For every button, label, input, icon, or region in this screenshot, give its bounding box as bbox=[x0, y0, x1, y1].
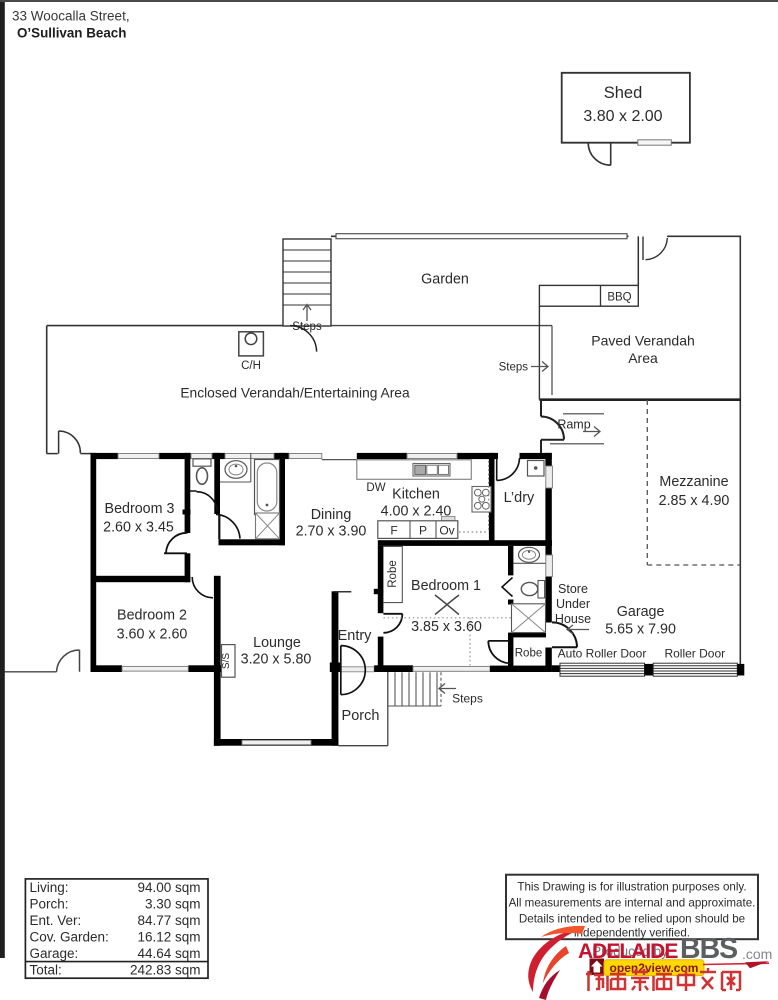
svg-text:Mezzanine: Mezzanine bbox=[659, 474, 728, 490]
svg-text:3.85 x 3.60: 3.85 x 3.60 bbox=[411, 619, 482, 635]
svg-text:Enclosed Verandah/Entertaining: Enclosed Verandah/Entertaining Area bbox=[180, 386, 410, 401]
svg-text:242.83 sqm: 242.83 sqm bbox=[130, 963, 201, 978]
svg-text:Area: Area bbox=[628, 350, 658, 366]
svg-text:Total:: Total: bbox=[30, 963, 62, 978]
svg-text:2.60 x 3.45: 2.60 x 3.45 bbox=[103, 520, 174, 536]
svg-text:Porch:: Porch: bbox=[30, 897, 69, 912]
svg-text:DW: DW bbox=[366, 482, 385, 494]
svg-text:Porch: Porch bbox=[342, 708, 380, 724]
svg-text:3.20 x 5.80: 3.20 x 5.80 bbox=[241, 652, 312, 668]
svg-text:33 Woocalla Street,: 33 Woocalla Street, bbox=[12, 9, 130, 24]
svg-text:Dining: Dining bbox=[311, 507, 352, 523]
svg-text:Entry: Entry bbox=[338, 628, 373, 644]
svg-text:2.70 x 3.90: 2.70 x 3.90 bbox=[296, 524, 367, 540]
svg-text:Living:: Living: bbox=[30, 880, 69, 895]
svg-text:Steps: Steps bbox=[499, 362, 529, 374]
svg-text:S/S: S/S bbox=[221, 653, 232, 669]
svg-text:independently verified.: independently verified. bbox=[574, 927, 690, 940]
svg-text:BBQ: BBQ bbox=[607, 292, 631, 304]
svg-text:Garage: Garage bbox=[617, 604, 665, 620]
svg-text:Robe: Robe bbox=[387, 560, 399, 588]
svg-text:Garden: Garden bbox=[421, 272, 469, 288]
svg-text:Under: Under bbox=[556, 597, 590, 611]
svg-text:L’dry: L’dry bbox=[504, 490, 535, 506]
svg-text:All measurements are internal: All measurements are internal and approx… bbox=[509, 897, 756, 910]
svg-text:44.64 sqm: 44.64 sqm bbox=[137, 946, 200, 961]
svg-text:Roller Door: Roller Door bbox=[664, 647, 725, 661]
svg-text:2.85 x 4.90: 2.85 x 4.90 bbox=[659, 493, 730, 509]
svg-text:House: House bbox=[555, 612, 591, 626]
svg-text:Robe: Robe bbox=[515, 648, 543, 660]
svg-text:Shed: Shed bbox=[604, 84, 643, 102]
svg-text:Lounge: Lounge bbox=[253, 635, 301, 651]
svg-text:Ov: Ov bbox=[439, 524, 454, 538]
svg-text:Garage:: Garage: bbox=[30, 946, 79, 961]
svg-text:Ramp: Ramp bbox=[557, 418, 590, 432]
svg-text:This Drawing is for illustrati: This Drawing is for illustration purpose… bbox=[517, 881, 746, 894]
svg-text:Ent. Ver:: Ent. Ver: bbox=[30, 913, 82, 928]
svg-text:3.60 x 2.60: 3.60 x 2.60 bbox=[117, 627, 188, 643]
svg-text:5.65 x 7.90: 5.65 x 7.90 bbox=[605, 622, 676, 638]
svg-text:O’Sullivan Beach: O’Sullivan Beach bbox=[17, 26, 126, 41]
svg-text:P: P bbox=[419, 524, 427, 538]
svg-text:Details intended to be relied: Details intended to be relied upon shoul… bbox=[519, 913, 745, 926]
svg-text:Bedroom 1: Bedroom 1 bbox=[411, 578, 481, 594]
svg-text:94.00 sqm: 94.00 sqm bbox=[137, 880, 200, 895]
svg-text:.com: .com bbox=[742, 946, 772, 962]
svg-text:3.30 sqm: 3.30 sqm bbox=[145, 897, 201, 912]
svg-text:Bedroom 2: Bedroom 2 bbox=[117, 608, 187, 624]
svg-text:84.77 sqm: 84.77 sqm bbox=[137, 913, 200, 928]
svg-text:Store: Store bbox=[558, 582, 588, 596]
svg-text:Kitchen: Kitchen bbox=[392, 487, 440, 503]
svg-text:Auto Roller Door: Auto Roller Door bbox=[558, 647, 647, 661]
svg-text:C/H: C/H bbox=[241, 360, 261, 372]
svg-text:Paved Verandah: Paved Verandah bbox=[591, 333, 695, 349]
svg-text:16.12 sqm: 16.12 sqm bbox=[137, 930, 200, 945]
svg-text:Cov. Garden:: Cov. Garden: bbox=[30, 930, 109, 945]
svg-text:Bedroom 3: Bedroom 3 bbox=[105, 501, 175, 517]
svg-text:Steps: Steps bbox=[452, 692, 483, 706]
svg-text:F: F bbox=[390, 524, 397, 538]
svg-text:4.00 x 2.40: 4.00 x 2.40 bbox=[381, 504, 452, 520]
svg-text:3.80 x 2.00: 3.80 x 2.00 bbox=[583, 108, 662, 125]
